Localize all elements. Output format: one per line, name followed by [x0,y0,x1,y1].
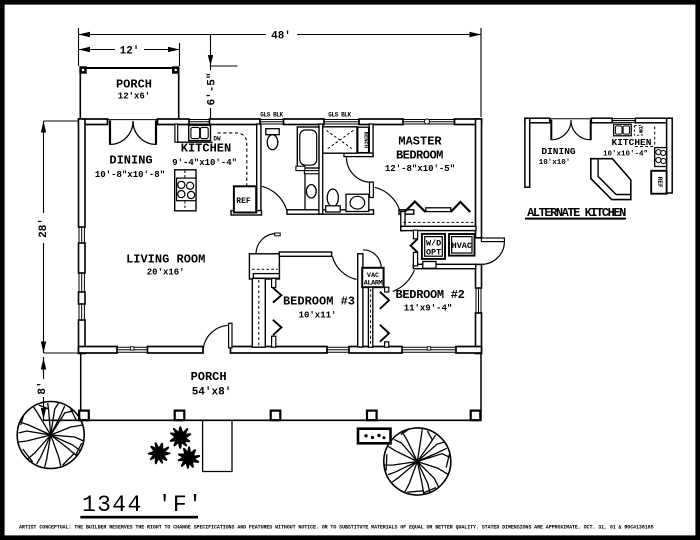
svg-text:9'-4"x10'-4": 9'-4"x10'-4" [172,158,237,168]
svg-text:VAC: VAC [367,272,379,280]
svg-text:BEDROOM #2: BEDROOM #2 [395,288,464,302]
svg-text:54'x8': 54'x8' [192,387,232,399]
svg-text:11'x9'-4": 11'x9'-4" [404,304,453,314]
svg-text:12'-8"x10'-5": 12'-8"x10'-5" [385,164,455,174]
svg-text:ALARM: ALARM [364,280,383,288]
svg-text:DINING: DINING [541,146,576,157]
svg-text:12': 12' [120,46,140,58]
svg-text:10'-8"x10'-8": 10'-8"x10'-8" [95,170,165,180]
svg-text:BENCH: BENCH [363,132,370,149]
svg-text:6'-5": 6'-5" [207,72,219,105]
svg-text:KITCHEN: KITCHEN [181,142,231,156]
svg-text:LIVING ROOM: LIVING ROOM [126,253,205,267]
svg-text:PORCH: PORCH [191,370,227,384]
svg-text:8': 8' [37,381,49,394]
svg-text:REF: REF [236,197,251,206]
svg-text:HVAC: HVAC [452,241,472,251]
svg-text:BEDROOM: BEDROOM [396,148,443,162]
svg-text:GLS BLK: GLS BLK [260,112,283,119]
svg-text:OPT: OPT [426,248,441,258]
svg-text:ARTIST CONCEPTUAL: THE BUILDER: ARTIST CONCEPTUAL: THE BUILDER RESERVES … [19,524,654,530]
svg-text:BEDROOM #3: BEDROOM #3 [283,295,355,309]
svg-text:20'x16': 20'x16' [147,267,185,277]
svg-text:10'x11': 10'x11' [299,310,337,320]
svg-text:10'x10': 10'x10' [539,159,571,167]
svg-text:1344 'F': 1344 'F' [82,492,203,518]
svg-text:DW: DW [637,127,643,133]
svg-text:PORCH: PORCH [116,78,152,92]
svg-text:REF: REF [656,177,663,188]
svg-text:10'x10'-4": 10'x10'-4" [603,150,648,158]
svg-text:48': 48' [271,31,291,43]
svg-text:12'x6': 12'x6' [118,92,150,102]
svg-text:MASTER: MASTER [398,135,442,149]
svg-text:28': 28' [38,218,50,238]
svg-text:DINING: DINING [109,153,152,167]
svg-text:GLS BLK: GLS BLK [328,112,351,119]
svg-text:KITCHEN: KITCHEN [612,137,652,148]
